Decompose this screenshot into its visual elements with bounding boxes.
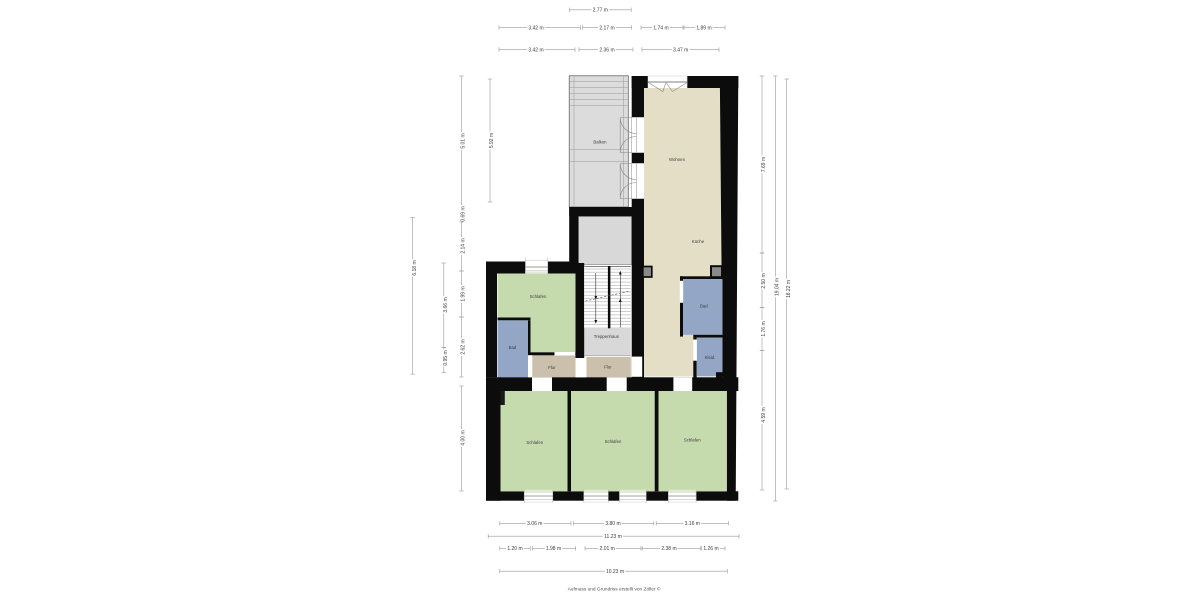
svg-text:10.23 m: 10.23 m <box>606 569 624 575</box>
svg-text:Bad: Bad <box>700 304 708 309</box>
svg-text:Schlafen: Schlafen <box>605 439 622 444</box>
svg-text:1.98 m: 1.98 m <box>546 546 561 552</box>
svg-text:1.76 m: 1.76 m <box>761 321 767 336</box>
svg-text:3.42 m: 3.42 m <box>528 26 543 32</box>
svg-text:3.16 m: 3.16 m <box>685 521 700 527</box>
svg-text:19.04 m: 19.04 m <box>775 278 781 296</box>
svg-text:5.01 m: 5.01 m <box>461 133 467 148</box>
svg-text:2.36 m: 2.36 m <box>599 48 614 54</box>
svg-text:4.59 m: 4.59 m <box>761 407 767 422</box>
svg-text:2.38 m: 2.38 m <box>661 546 676 552</box>
svg-text:1.26 m: 1.26 m <box>703 546 718 552</box>
svg-text:Flur: Flur <box>548 365 556 370</box>
svg-text:2.50 m: 2.50 m <box>761 273 767 288</box>
svg-text:Treppenhaus: Treppenhaus <box>594 334 619 339</box>
svg-text:Aufmass und Grundriss erstellt: Aufmass und Grundriss erstellt von Zölle… <box>568 586 661 593</box>
svg-text:Küche: Küche <box>692 239 705 244</box>
svg-text:2.62 m: 2.62 m <box>461 339 467 354</box>
svg-text:Kleid.: Kleid. <box>705 355 716 360</box>
svg-text:3.06 m: 3.06 m <box>527 521 542 527</box>
svg-text:3.66 m: 3.66 m <box>443 297 449 312</box>
svg-text:Bad: Bad <box>509 345 517 350</box>
svg-text:3.47 m: 3.47 m <box>673 48 688 54</box>
svg-text:0.95 m: 0.95 m <box>443 350 449 365</box>
svg-text:Schlafen: Schlafen <box>530 294 547 299</box>
svg-text:Flur: Flur <box>604 365 612 370</box>
svg-text:Balkon: Balkon <box>593 140 607 145</box>
svg-text:5.92 m: 5.92 m <box>489 133 495 148</box>
svg-text:1.89 m: 1.89 m <box>696 26 711 32</box>
svg-text:1.74 m: 1.74 m <box>653 26 668 32</box>
svg-text:1.99 m: 1.99 m <box>461 286 467 301</box>
svg-text:2.77 m: 2.77 m <box>593 8 608 14</box>
svg-text:3.80 m: 3.80 m <box>605 521 620 527</box>
svg-text:4.00 m: 4.00 m <box>461 430 467 445</box>
svg-text:3.42 m: 3.42 m <box>528 48 543 54</box>
svg-text:2.14 m: 2.14 m <box>461 238 467 253</box>
svg-text:Wohnen: Wohnen <box>669 157 686 162</box>
svg-text:6.18 m: 6.18 m <box>412 260 418 275</box>
svg-text:7.69 m: 7.69 m <box>761 157 767 172</box>
svg-text:Schlafen: Schlafen <box>526 440 543 445</box>
svg-text:2.17 m: 2.17 m <box>599 26 614 32</box>
svg-text:18.22 m: 18.22 m <box>786 280 792 298</box>
svg-text:11.23 m: 11.23 m <box>604 534 622 540</box>
svg-text:Schlafen: Schlafen <box>684 438 701 443</box>
svg-text:0.69 m: 0.69 m <box>461 206 467 221</box>
svg-text:2.01 m: 2.01 m <box>600 546 615 552</box>
svg-text:1.20 m: 1.20 m <box>507 546 522 552</box>
